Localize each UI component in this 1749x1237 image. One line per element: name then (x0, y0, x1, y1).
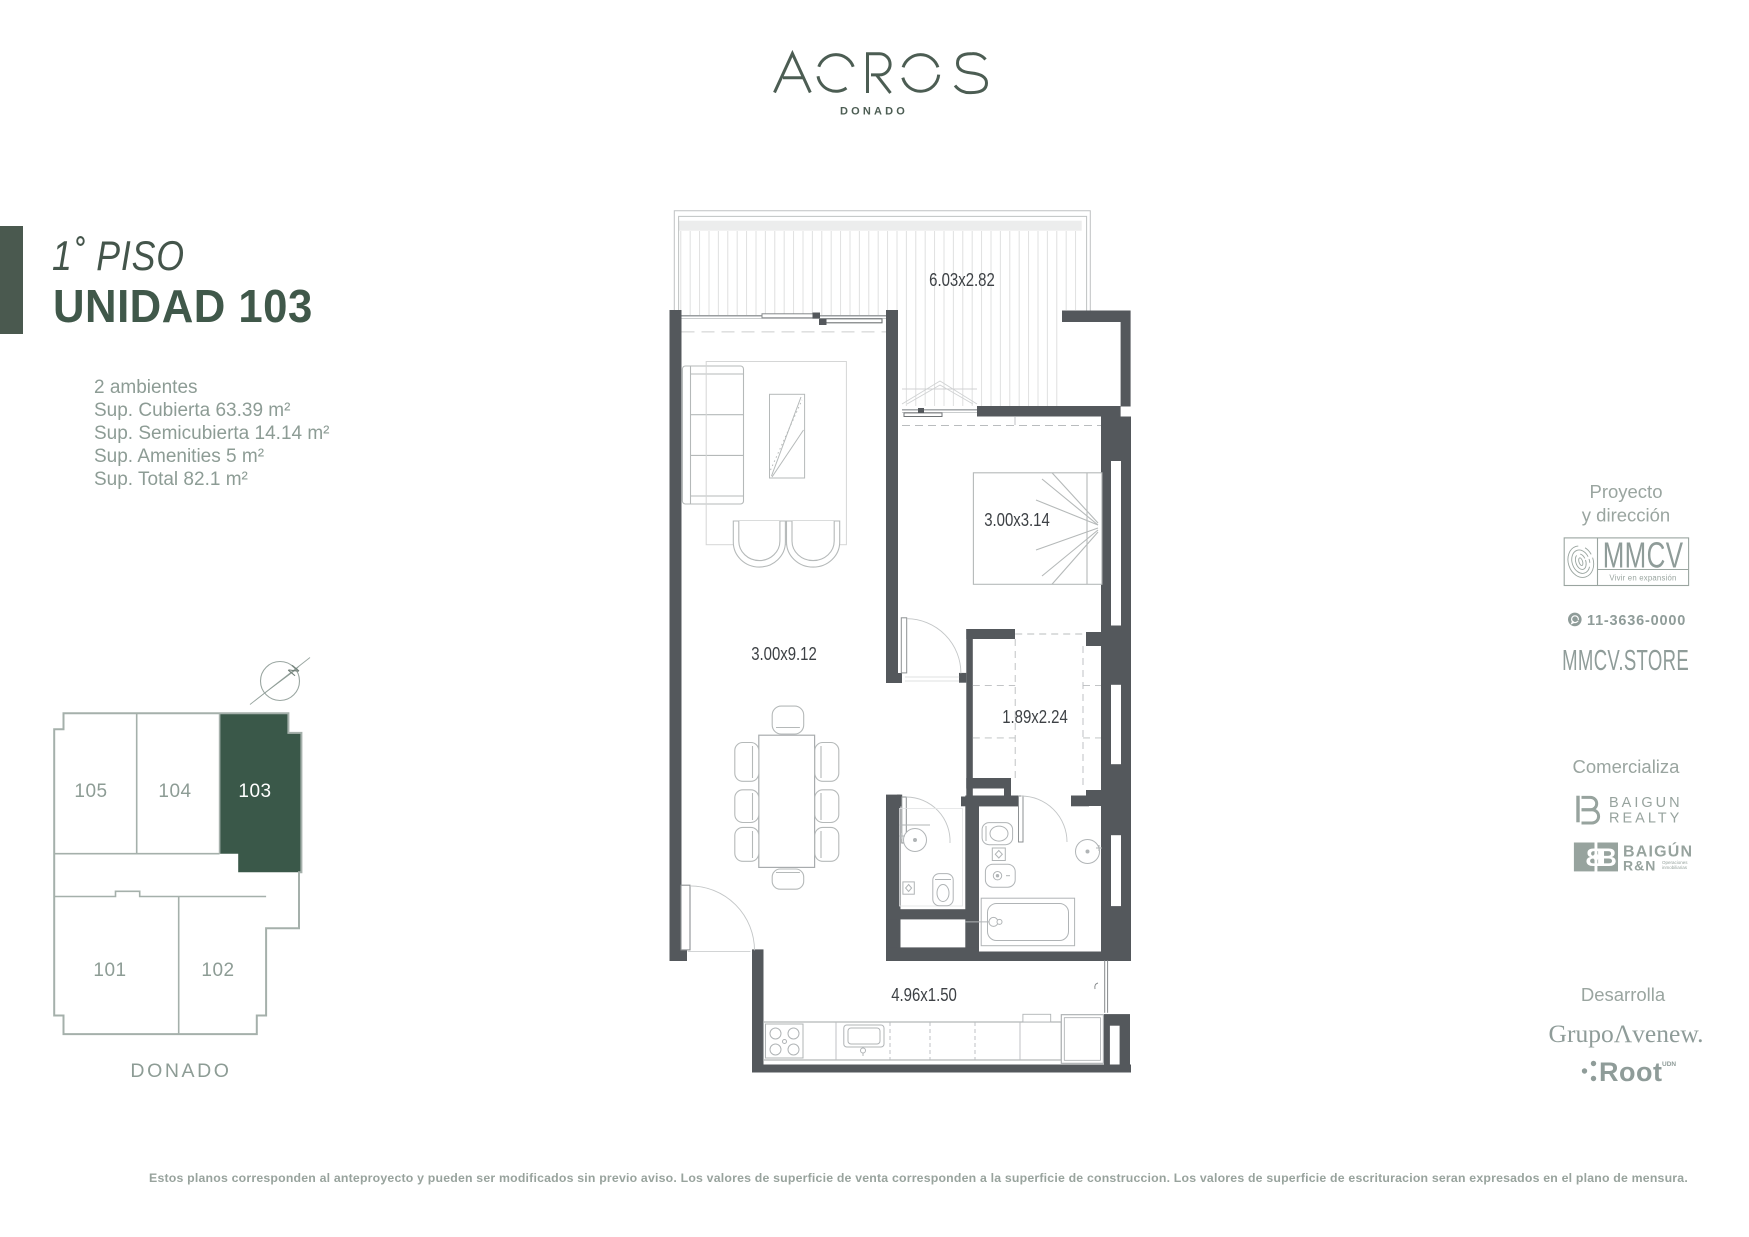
svg-text:102: 102 (201, 960, 234, 981)
svg-text:Comercializa: Comercializa (1573, 756, 1681, 777)
svg-text:Desarrolla: Desarrolla (1581, 984, 1666, 1005)
svg-text:103: 103 (238, 781, 271, 802)
svg-text:Proyecto: Proyecto (1589, 481, 1662, 502)
svg-text:3.00x9.12: 3.00x9.12 (751, 644, 817, 665)
svg-text:Vivir en expansión: Vivir en expansión (1609, 574, 1676, 583)
svg-text:y dirección: y dirección (1582, 505, 1670, 526)
svg-text:101: 101 (93, 960, 126, 981)
svg-text:UDN: UDN (1662, 1061, 1676, 1068)
svg-text:3.00x3.14: 3.00x3.14 (984, 510, 1050, 531)
svg-text:R&N: R&N (1623, 858, 1656, 874)
svg-text:B: B (1599, 844, 1617, 872)
svg-text:MMCV.STORE: MMCV.STORE (1562, 645, 1689, 677)
svg-text:105: 105 (74, 781, 107, 802)
svg-text:6.03x2.82: 6.03x2.82 (929, 270, 995, 291)
svg-text:REALTY: REALTY (1609, 811, 1682, 827)
svg-text:4.96x1.50: 4.96x1.50 (891, 985, 957, 1006)
svg-text:Root: Root (1599, 1057, 1662, 1087)
svg-text:DONADO: DONADO (840, 106, 908, 118)
svg-text:MMCV: MMCV (1603, 535, 1684, 575)
svg-text:BAIGUN: BAIGUN (1609, 795, 1683, 811)
svg-text:1.89x2.24: 1.89x2.24 (1002, 707, 1068, 728)
svg-text:11-3636-0000: 11-3636-0000 (1587, 613, 1686, 629)
svg-text:DONADO: DONADO (130, 1060, 231, 1082)
svg-text:GrupoΛvenew.: GrupoΛvenew. (1549, 1019, 1704, 1048)
svg-text:inmobiliarias: inmobiliarias (1662, 865, 1688, 870)
svg-text:104: 104 (158, 781, 191, 802)
